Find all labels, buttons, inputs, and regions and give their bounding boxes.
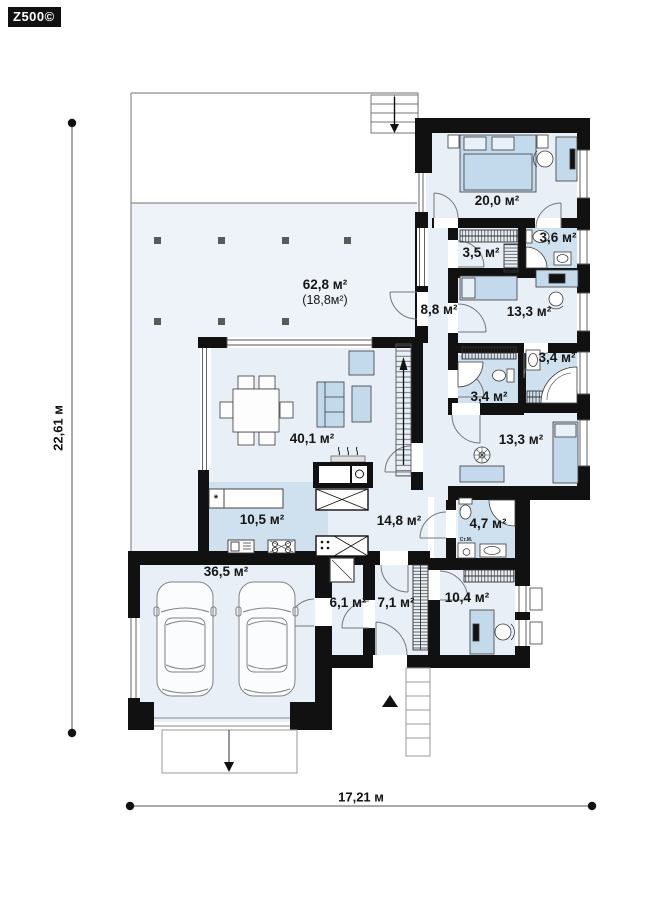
window [577,293,590,331]
terrace-area-note: (18,8м²) [302,293,347,307]
window [417,173,426,212]
room-label-kitchen: 10,5 м² [240,512,285,528]
dimension-height-label: 22,61 м [51,405,66,451]
room-label-corridor: 8,8 м² [421,302,458,318]
window [227,337,372,348]
fireplace [313,447,373,556]
floor-plan-page: Z500© 62,8 м² (18,8м²) 40,1 м² 10,5 м² 3… [0,0,655,918]
toilet-icon [493,369,515,382]
kitchen-star-label: * [214,493,218,505]
window [200,348,211,470]
armchair [349,351,374,375]
brand-logo: Z500© [8,7,61,27]
room-label-bathroom-34-right: 3,4 м² [539,350,576,366]
window [515,586,542,612]
room-label-wardrobe: 3,5 м² [463,245,500,261]
stove-icon [268,540,295,553]
room-label-hall: 14,8 м² [377,513,422,529]
room-label-living-room: 40,1 м² [290,431,335,447]
window [515,620,542,646]
washing-machine-label: Ст.М. [460,537,473,543]
coffee-table [352,386,371,422]
room-label-utility: 6,1 м² [330,595,367,611]
room-label-bedroom-master: 20,0 м² [475,193,520,209]
plant-icon [474,447,490,463]
attic-stairs [396,344,411,476]
room-label-garage: 36,5 м² [204,564,249,580]
sink-icon [554,252,571,265]
exterior-stairs [371,95,418,133]
bed-upper [460,276,517,300]
window [577,352,590,394]
master-bed [448,135,548,192]
sofa [317,382,344,427]
window [128,618,140,698]
window [577,230,590,264]
driveway-arrow-icon [224,762,234,772]
sink-icon [480,544,506,557]
room-label-entry: 7,1 м² [378,595,415,611]
terrace-area: 62,8 м² [303,277,348,292]
boiler-icon [330,558,354,582]
room-label-bedroom-133-lower: 13,3 м² [499,432,544,448]
room-label-bedroom-133-upper: 13,3 м² [507,304,552,320]
room-label-bathroom-34-left: 3,4 м² [471,389,508,405]
window [577,420,590,466]
entrance-arrow-icon [382,695,398,707]
room-label-office: 10,4 м² [445,590,490,606]
floor-plan-drawing [0,0,655,918]
dresser [460,466,504,482]
room-label-bathroom-36: 3,6 м² [540,230,577,246]
room-label-terrace: 62,8 м² (18,8м²) [302,277,347,307]
bed-lower [553,422,578,483]
window [417,228,428,286]
sink-icon [228,540,254,553]
entrance [382,668,430,756]
washing-machine-icon [458,543,475,558]
room-label-bathroom-47: 4,7 м² [470,516,507,532]
dimension-width-label: 17,21 м [338,790,384,805]
window [577,150,590,198]
